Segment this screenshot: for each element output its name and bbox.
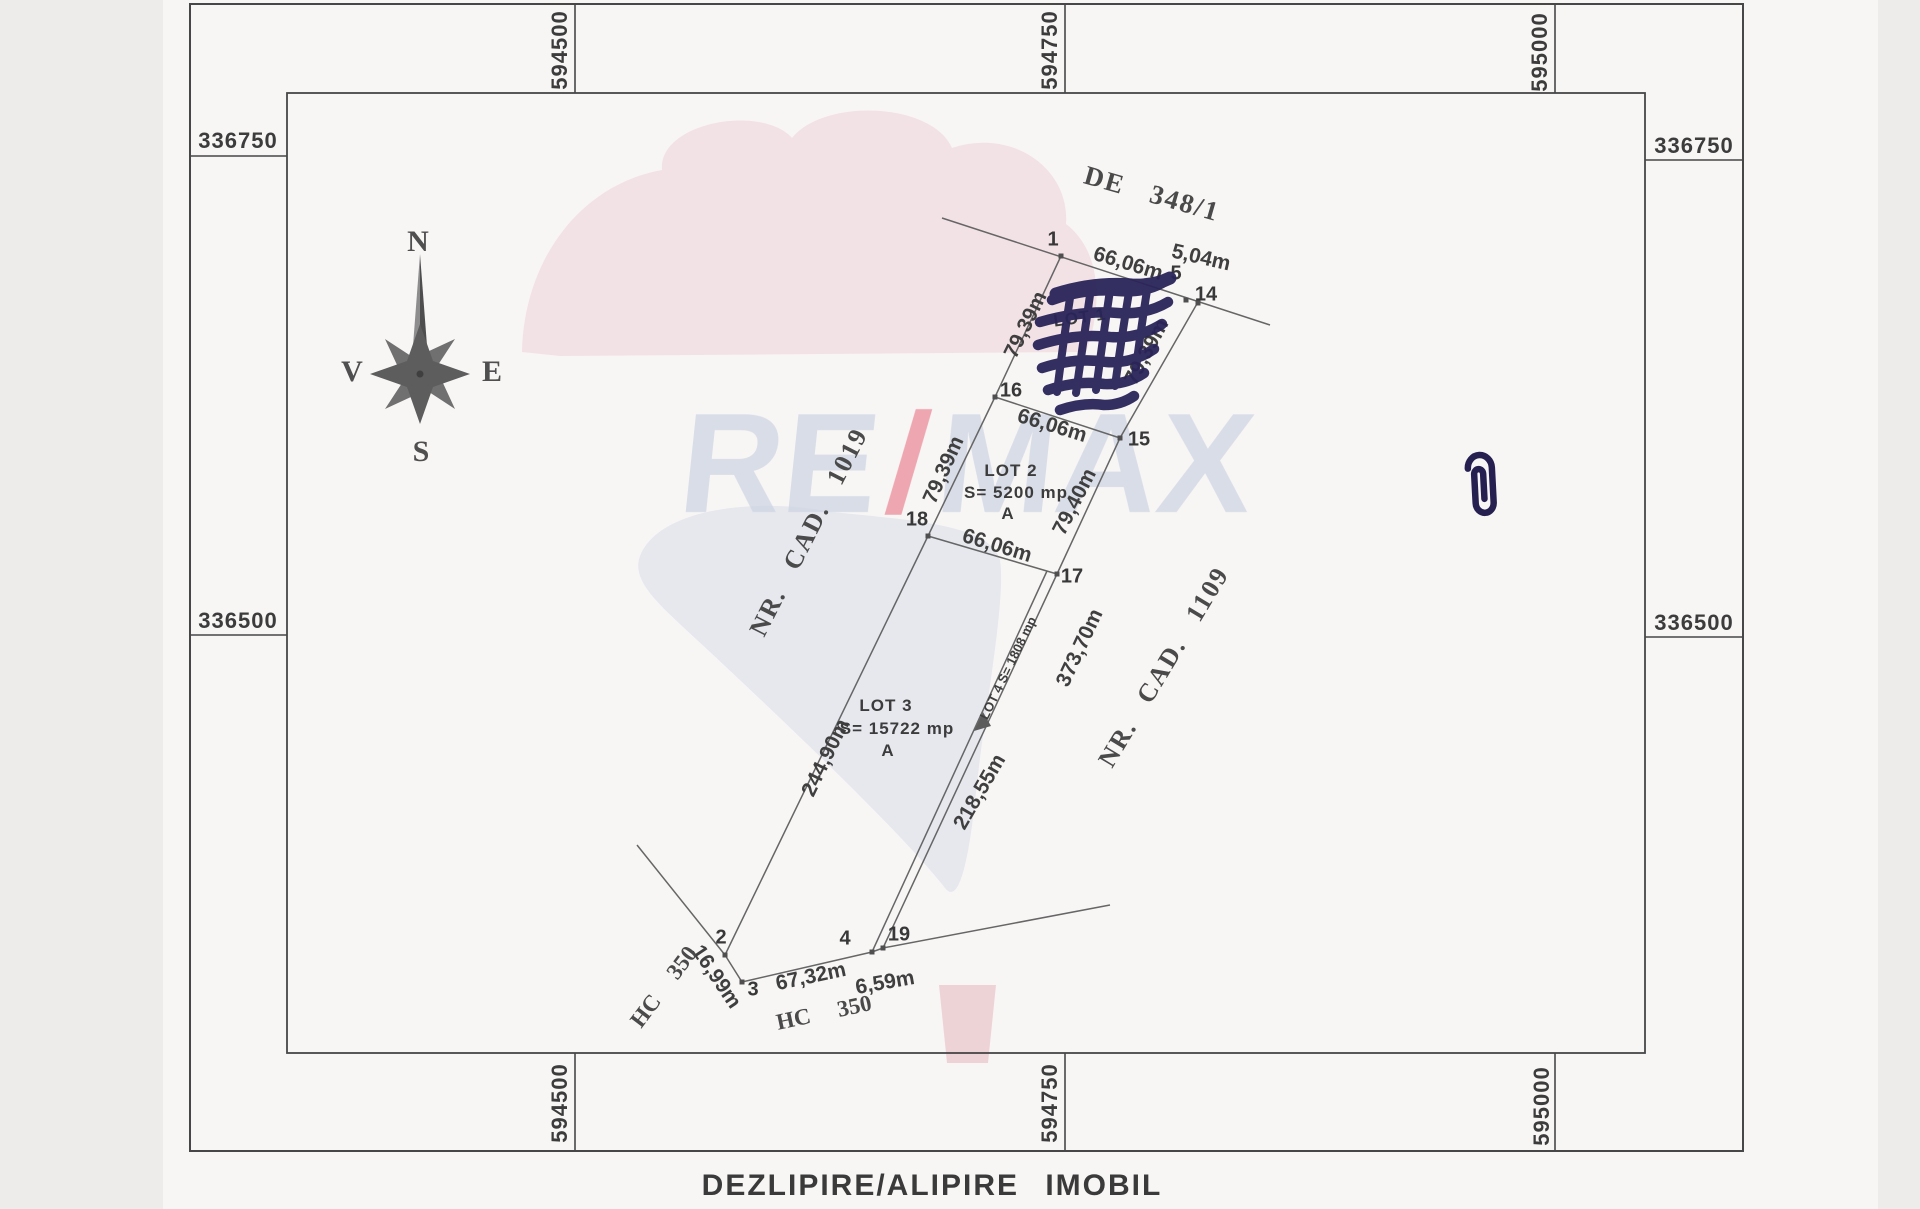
pen-scribble: [1038, 278, 1170, 410]
paperclip-icon: [1467, 454, 1494, 513]
cadastral-plan-page: RE/MAX: [0, 0, 1920, 1209]
ink-annotations: [0, 0, 1920, 1209]
